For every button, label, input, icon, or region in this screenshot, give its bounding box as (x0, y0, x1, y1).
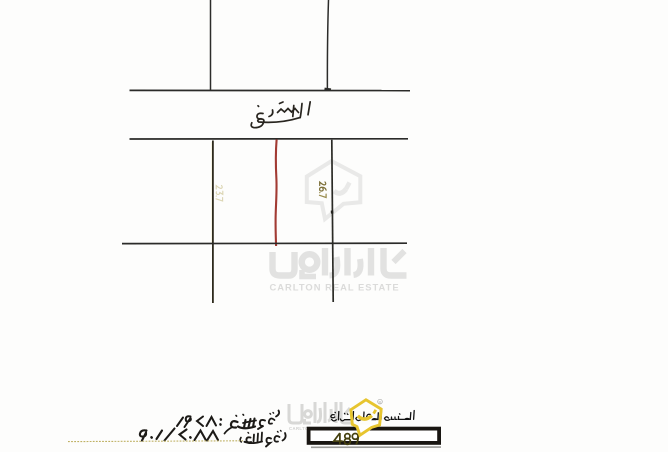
svg-text:CARLTON REAL ESTATE: CARLTON REAL ESTATE (270, 282, 400, 293)
